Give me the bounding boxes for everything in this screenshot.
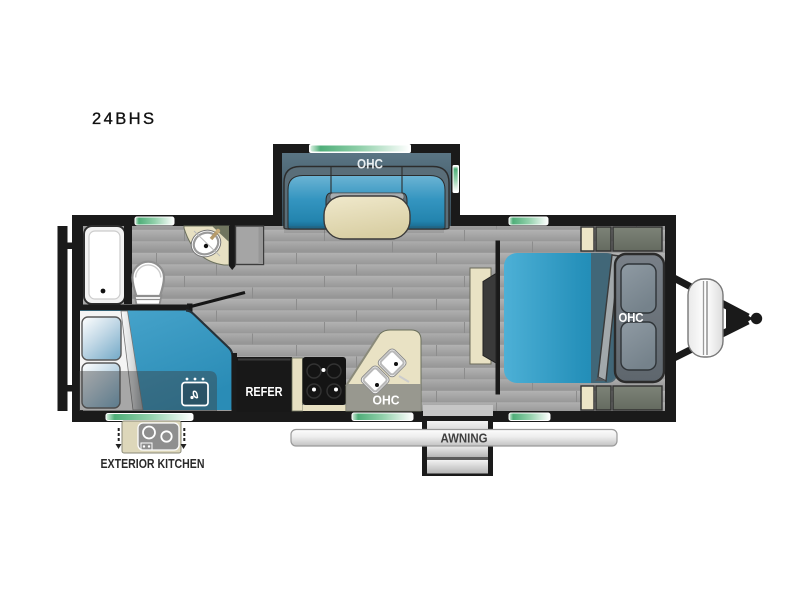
svg-text:OHC: OHC <box>619 311 644 325</box>
svg-text:EXTERIOR KITCHEN: EXTERIOR KITCHEN <box>101 456 205 471</box>
svg-text:OHC: OHC <box>373 393 401 408</box>
svg-text:REFER: REFER <box>246 384 284 399</box>
svg-text:AWNING: AWNING <box>441 431 488 446</box>
svg-text:OHC: OHC <box>357 157 383 172</box>
